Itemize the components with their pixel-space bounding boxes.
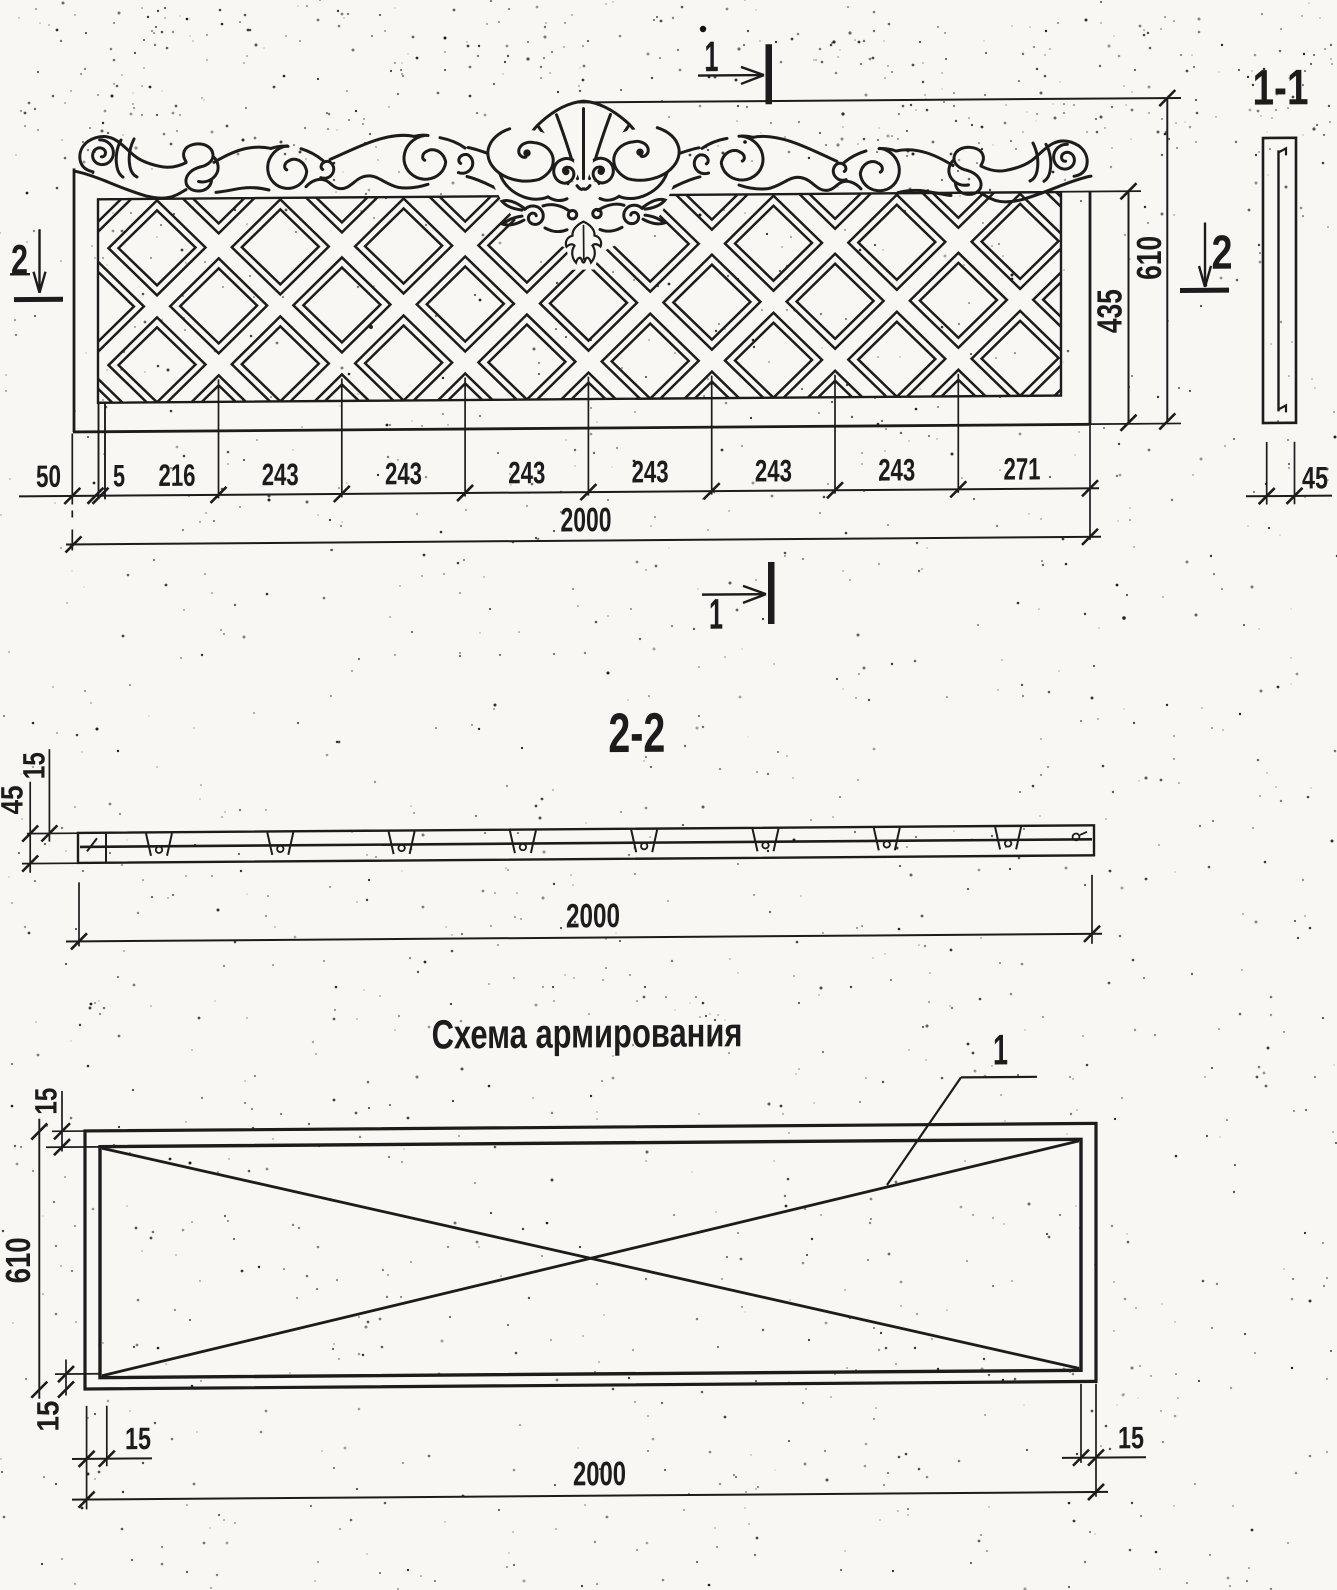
- svg-text:2000: 2000: [561, 502, 612, 540]
- svg-text:1: 1: [993, 1026, 1008, 1074]
- svg-text:1: 1: [709, 591, 723, 639]
- svg-text:2000: 2000: [566, 897, 620, 935]
- svg-text:2: 2: [11, 236, 28, 283]
- svg-text:243: 243: [262, 457, 299, 492]
- svg-text:15: 15: [125, 1421, 151, 1456]
- svg-text:2-2: 2-2: [608, 702, 665, 765]
- svg-text:5: 5: [113, 458, 125, 493]
- svg-text:15: 15: [31, 1401, 66, 1432]
- svg-text:15: 15: [17, 752, 52, 779]
- svg-text:610: 610: [1129, 236, 1169, 280]
- svg-text:50: 50: [36, 458, 61, 494]
- svg-text:2000: 2000: [573, 1455, 626, 1494]
- svg-text:243: 243: [632, 455, 669, 490]
- svg-text:243: 243: [385, 456, 422, 491]
- svg-text:1: 1: [704, 33, 718, 81]
- svg-text:243: 243: [755, 454, 792, 489]
- svg-text:435: 435: [1090, 289, 1130, 333]
- svg-text:15: 15: [29, 1088, 64, 1115]
- svg-text:1-1: 1-1: [1253, 61, 1309, 116]
- svg-text:15: 15: [1118, 1420, 1144, 1455]
- svg-text:45: 45: [1302, 460, 1328, 495]
- svg-text:2: 2: [1211, 226, 1232, 280]
- svg-text:45: 45: [0, 785, 30, 814]
- svg-text:243: 243: [878, 453, 915, 488]
- svg-text:271: 271: [1003, 452, 1040, 487]
- svg-text:243: 243: [508, 456, 545, 491]
- svg-text:610: 610: [0, 1237, 38, 1283]
- svg-text:Схема армирования: Схема армирования: [432, 1009, 743, 1058]
- svg-text:216: 216: [158, 458, 195, 493]
